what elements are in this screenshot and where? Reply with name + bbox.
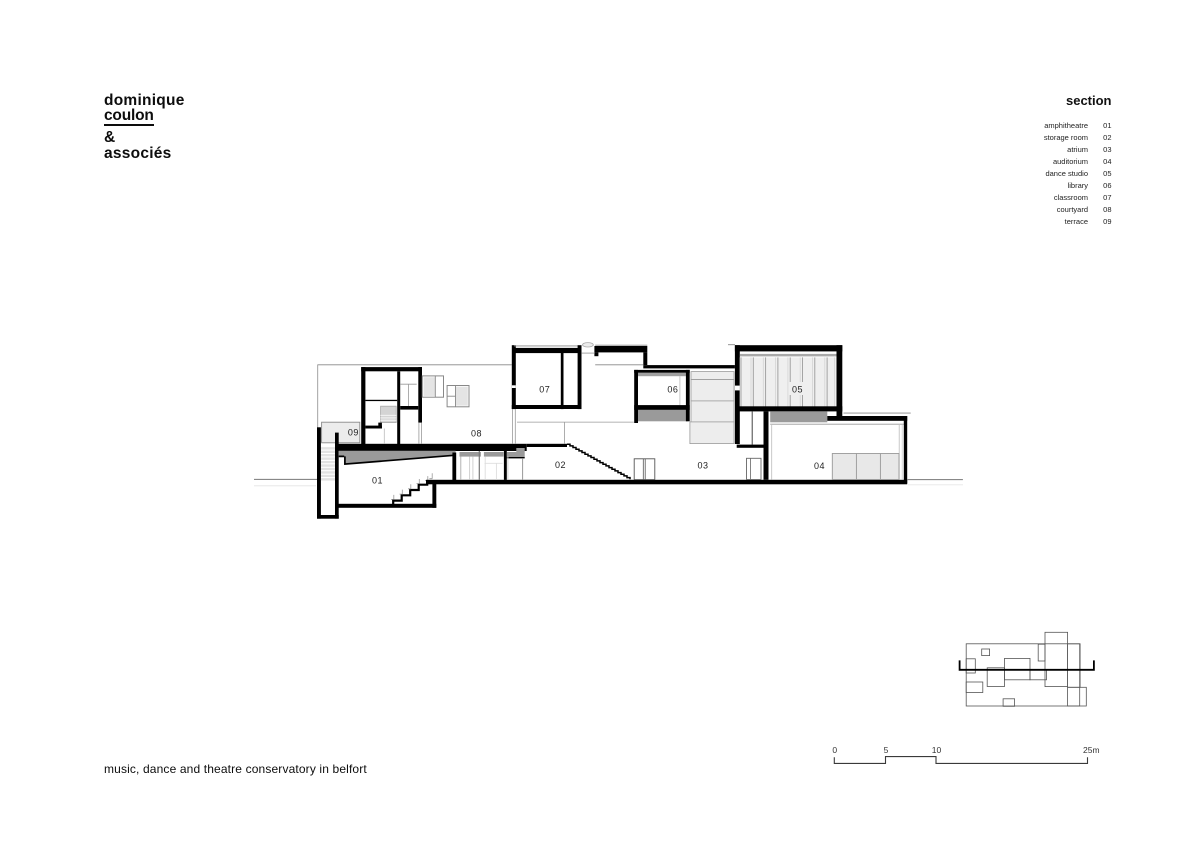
svg-text:09: 09 <box>348 427 359 437</box>
svg-text:08: 08 <box>471 428 482 438</box>
svg-text:03: 03 <box>697 460 708 470</box>
svg-text:04: 04 <box>814 461 825 471</box>
svg-text:06: 06 <box>667 384 678 394</box>
svg-text:05: 05 <box>792 384 803 394</box>
svg-text:0: 0 <box>832 745 837 755</box>
svg-text:25m: 25m <box>1083 745 1100 755</box>
svg-text:02: 02 <box>555 460 566 470</box>
svg-text:5: 5 <box>884 745 889 755</box>
svg-text:01: 01 <box>372 475 383 485</box>
svg-text:10: 10 <box>932 745 942 755</box>
svg-text:07: 07 <box>539 384 550 394</box>
